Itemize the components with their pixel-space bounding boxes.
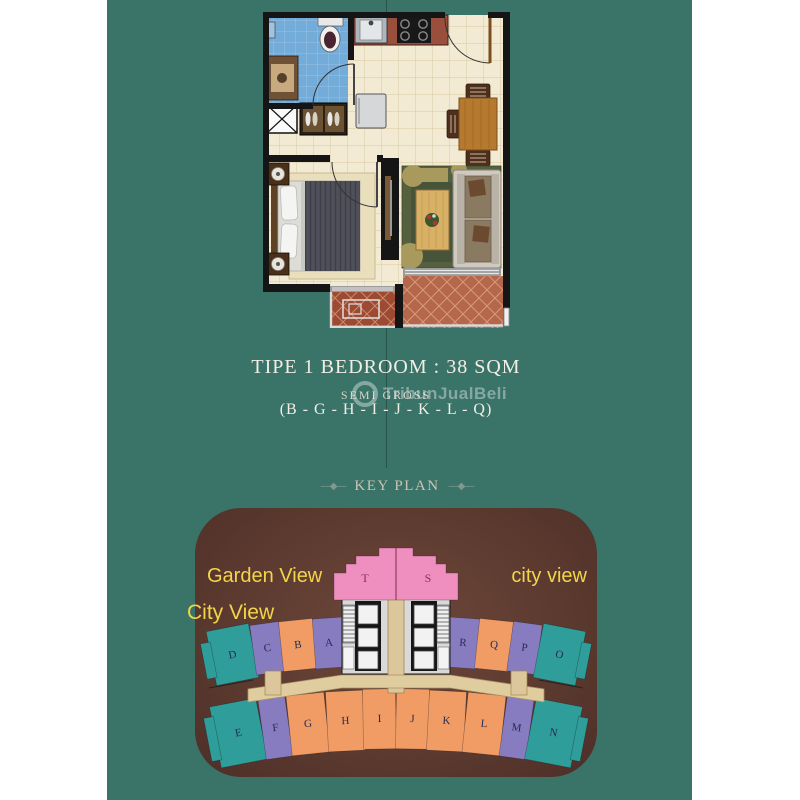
kitchen bbox=[352, 15, 448, 45]
keyplan-building-graphic: D C B A R Q bbox=[195, 508, 597, 777]
console bbox=[418, 168, 448, 182]
corridor-node-right bbox=[511, 671, 527, 695]
sofa bbox=[453, 170, 501, 268]
floorplan-graphic bbox=[263, 10, 513, 330]
balcony-slider-living bbox=[403, 268, 501, 276]
unit-j: J bbox=[395, 689, 429, 750]
unit-k: K bbox=[426, 690, 466, 752]
unit-r: R bbox=[446, 617, 479, 669]
refrigerator bbox=[356, 94, 386, 128]
unit-n: N bbox=[525, 698, 591, 769]
stairs-left bbox=[343, 605, 355, 643]
balcony-left bbox=[330, 292, 395, 328]
svg-text:I: I bbox=[378, 713, 382, 725]
corridor-node-left bbox=[265, 671, 281, 695]
unit-a: A bbox=[312, 617, 345, 669]
svg-text:H: H bbox=[341, 715, 350, 727]
nightstand-lamp bbox=[267, 163, 289, 185]
unit-ts-block: T S bbox=[334, 548, 458, 600]
unit-h: H bbox=[325, 690, 365, 752]
svg-text:G: G bbox=[303, 718, 312, 731]
shaft-box bbox=[267, 105, 297, 133]
living-room bbox=[397, 162, 505, 272]
svg-text:A: A bbox=[325, 637, 334, 650]
unit-e: E bbox=[202, 698, 268, 769]
unit-i: I bbox=[362, 689, 396, 750]
flourish-right-icon: —◆— bbox=[449, 481, 474, 492]
unit-b: B bbox=[278, 618, 317, 671]
left-white-margin bbox=[0, 0, 107, 800]
svg-text:Q: Q bbox=[489, 639, 498, 652]
keyplan-heading: —◆— KEY PLAN —◆— bbox=[321, 478, 474, 495]
unit-type-title: TIPE 1 BEDROOM : 38 SQM bbox=[251, 356, 520, 379]
right-white-margin bbox=[692, 0, 800, 800]
unit-o: O bbox=[533, 623, 594, 687]
unit-s: S bbox=[425, 571, 432, 585]
svg-text:K: K bbox=[442, 715, 451, 727]
svg-text:B: B bbox=[294, 639, 303, 652]
bedroom bbox=[267, 163, 375, 279]
unit-l: L bbox=[462, 692, 506, 756]
unit-g: G bbox=[286, 692, 330, 756]
window bbox=[504, 308, 509, 326]
stairs-right bbox=[437, 605, 449, 643]
bathroom bbox=[265, 15, 348, 103]
nightstand-lamp bbox=[267, 253, 289, 275]
watermark: TribunJualBeli bbox=[352, 381, 507, 407]
listing-image: TIPE 1 BEDROOM : 38 SQM SEMI GROSS (B - … bbox=[0, 0, 800, 800]
svg-text:M: M bbox=[511, 721, 523, 734]
balcony-right bbox=[403, 276, 503, 328]
flourish-left-icon: —◆— bbox=[321, 481, 346, 492]
watermark-text: TribunJualBeli bbox=[383, 384, 507, 404]
keyplan-panel: Garden View City View city view D C bbox=[195, 508, 597, 777]
coffee-table bbox=[416, 190, 449, 250]
balcony-slider-bedroom bbox=[330, 286, 395, 292]
unit-d: D bbox=[198, 623, 259, 687]
watermark-logo-icon bbox=[352, 381, 378, 407]
unit-t: T bbox=[361, 571, 369, 585]
